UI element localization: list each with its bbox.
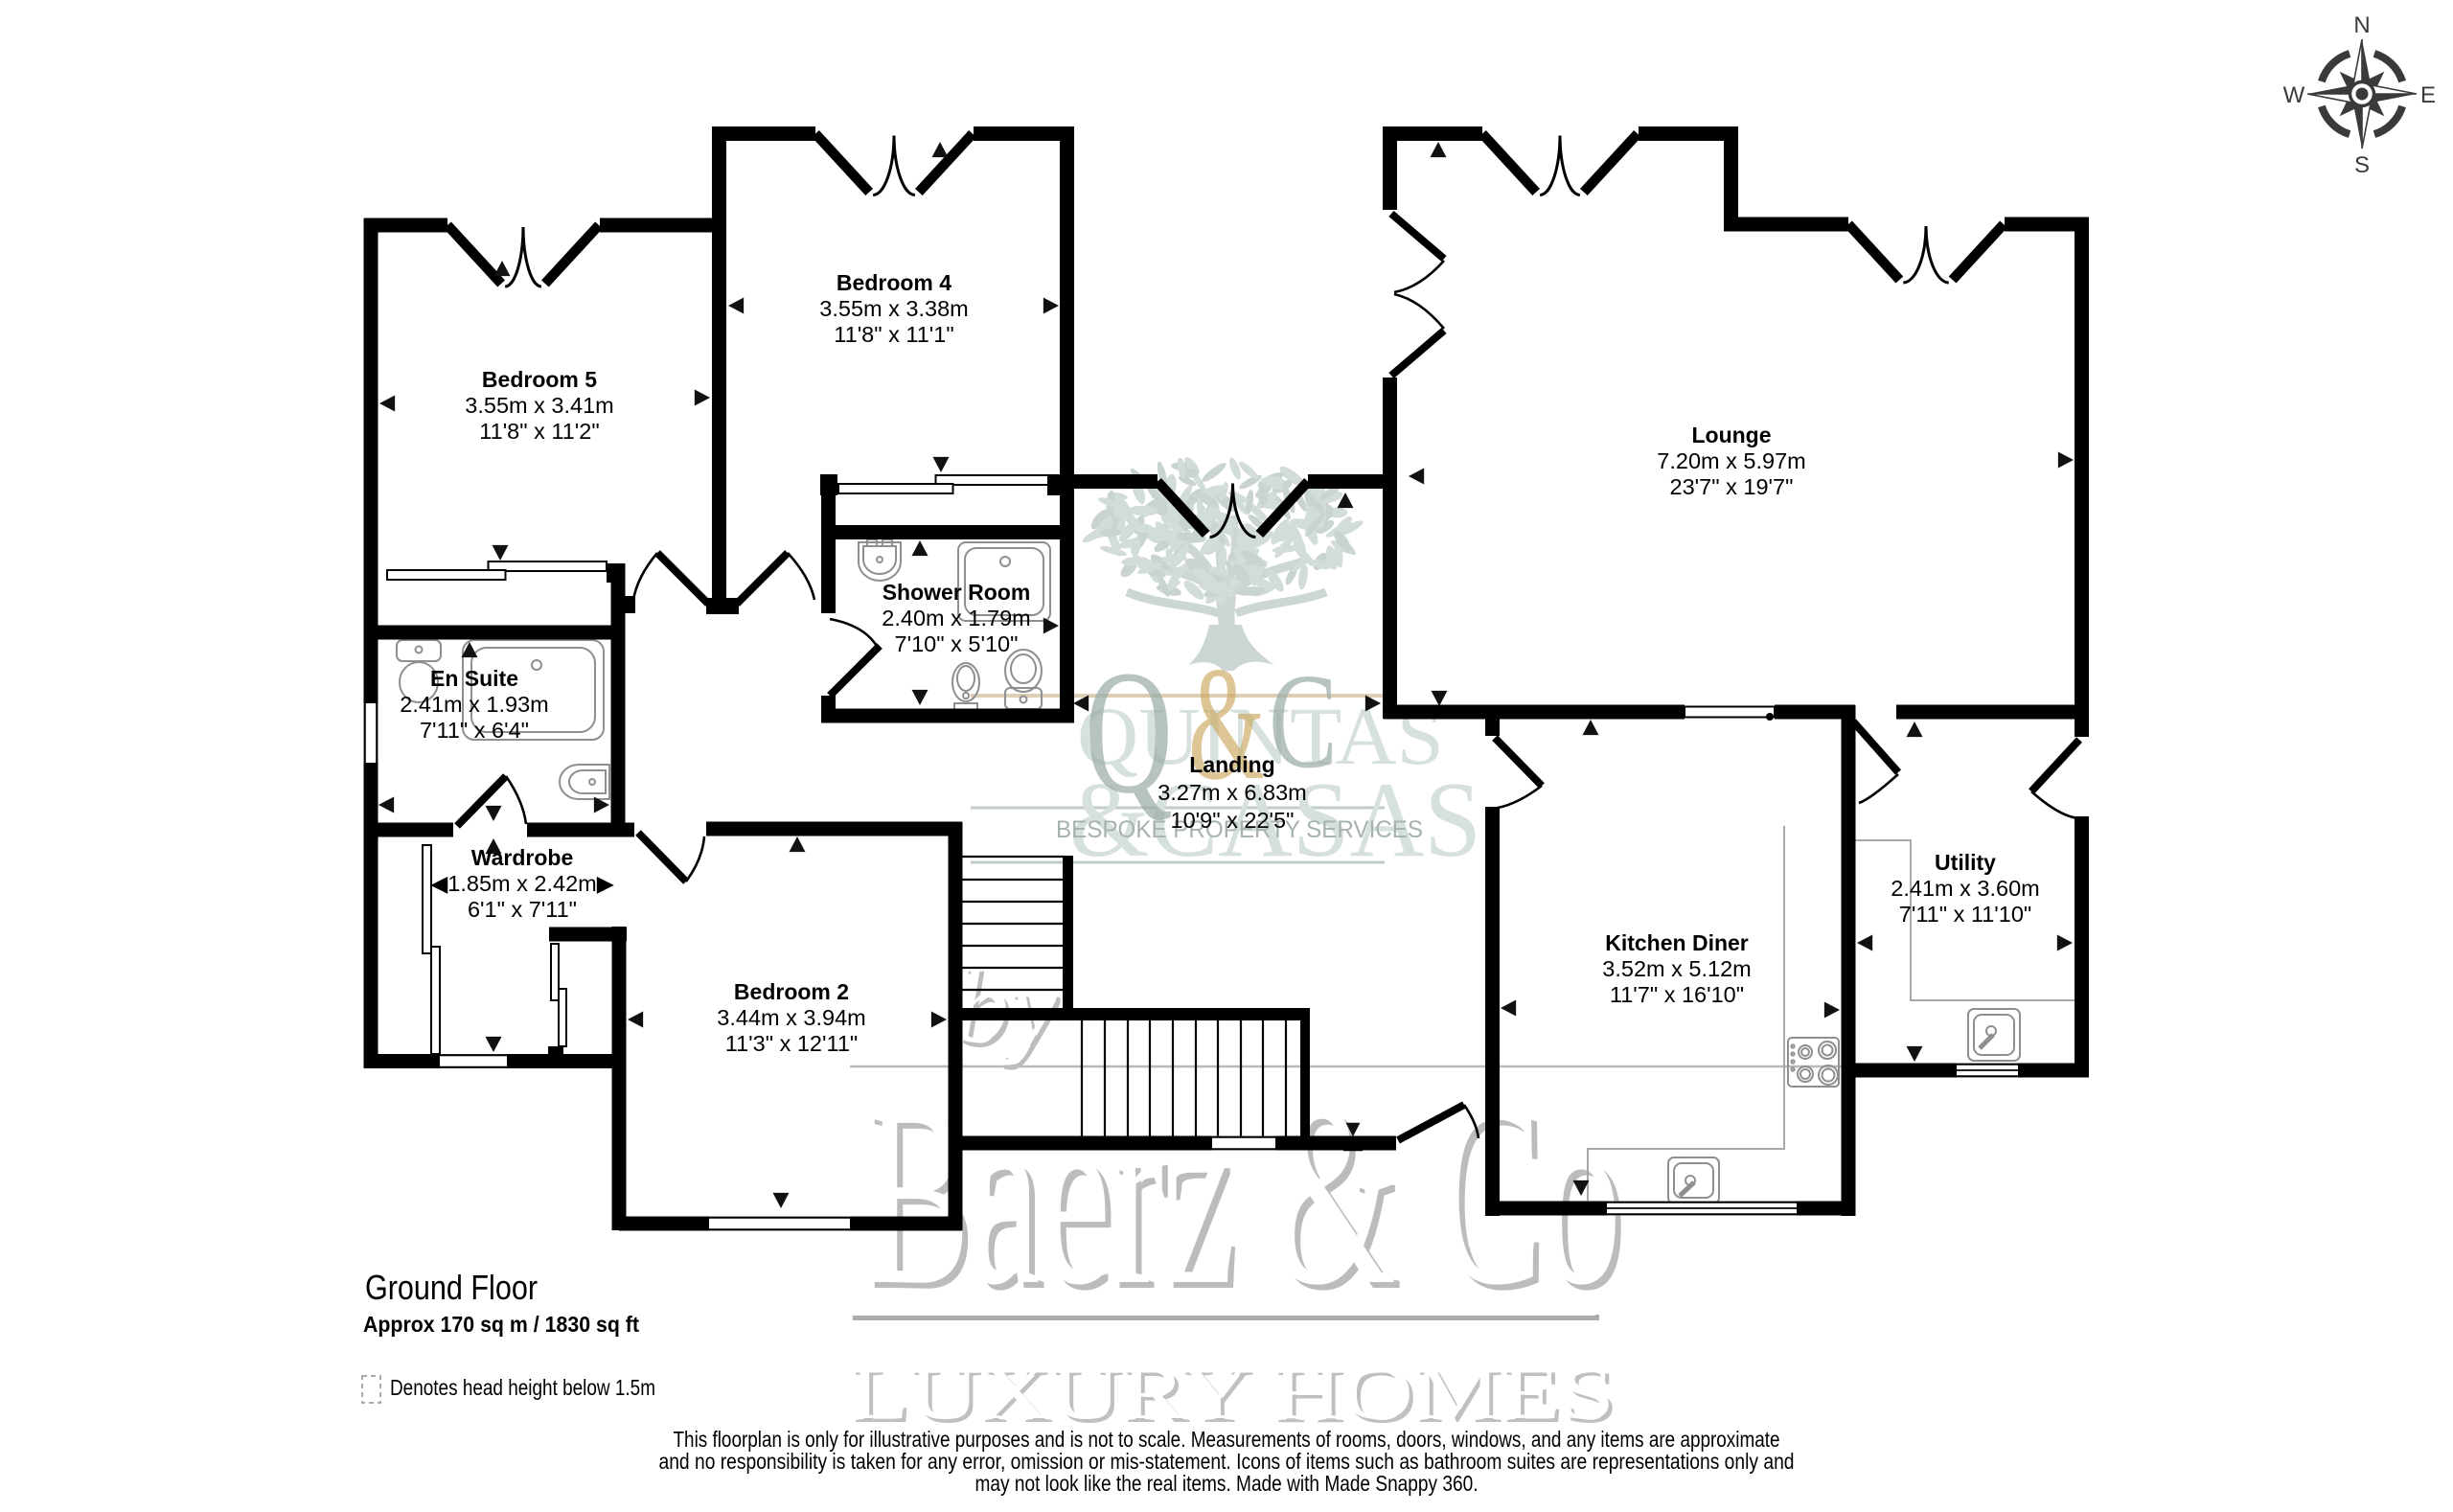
svg-text:2.41m x 1.93m: 2.41m x 1.93m: [400, 692, 548, 717]
svg-text:7.20m x 5.97m: 7.20m x 5.97m: [1657, 448, 1805, 473]
svg-text:LUXURY HOMES: LUXURY HOMES: [849, 1351, 1615, 1434]
svg-text:Shower Room: Shower Room: [883, 580, 1031, 605]
svg-text:Denotes head height below 1.5m: Denotes head height below 1.5m: [390, 1375, 655, 1400]
svg-text:10'9" x 22'5": 10'9" x 22'5": [1171, 808, 1295, 833]
svg-text:E: E: [2420, 82, 2436, 108]
svg-text:3.55m x 3.41m: 3.55m x 3.41m: [465, 393, 613, 418]
svg-text:En Suite: En Suite: [430, 666, 518, 691]
svg-text:11'8" x 11'2": 11'8" x 11'2": [479, 419, 599, 444]
svg-text:23'7" x 19'7": 23'7" x 19'7": [1670, 474, 1794, 499]
svg-text:7'10" x 5'10": 7'10" x 5'10": [895, 631, 1019, 656]
svg-text:6'1" x 7'11": 6'1" x 7'11": [468, 897, 577, 922]
svg-text:Utility: Utility: [1935, 850, 1996, 875]
svg-text:3.52m x 5.12m: 3.52m x 5.12m: [1602, 956, 1751, 981]
svg-text:3.27m x 6.83m: 3.27m x 6.83m: [1158, 780, 1306, 805]
svg-text:Bedroom 4: Bedroom 4: [837, 270, 951, 295]
svg-text:W: W: [2283, 82, 2305, 108]
svg-text:N: N: [2353, 12, 2370, 38]
svg-text:11'8" x 11'1": 11'8" x 11'1": [834, 322, 953, 347]
svg-text:3.55m x 3.38m: 3.55m x 3.38m: [819, 296, 968, 321]
svg-text:7'11" x 11'10": 7'11" x 11'10": [1899, 902, 2031, 927]
svg-text:C: C: [1269, 645, 1338, 796]
svg-text:Lounge: Lounge: [1691, 423, 1771, 447]
svg-text:Landing: Landing: [1189, 752, 1274, 777]
svg-text:S: S: [2354, 152, 2370, 178]
svg-text:Bedroom 5: Bedroom 5: [482, 367, 597, 392]
svg-text:Kitchen Diner: Kitchen Diner: [1605, 930, 1749, 955]
svg-text:7'11" x 6'4": 7'11" x 6'4": [420, 718, 529, 743]
svg-text:Approx 170 sq m / 1830 sq ft: Approx 170 sq m / 1830 sq ft: [363, 1312, 639, 1337]
svg-text:Ground Floor: Ground Floor: [365, 1268, 538, 1307]
svg-text:by: by: [955, 947, 1057, 1065]
svg-text:3.44m x 3.94m: 3.44m x 3.94m: [717, 1005, 865, 1030]
svg-text:11'3" x 12'11": 11'3" x 12'11": [725, 1031, 858, 1056]
svg-text:Bedroom 2: Bedroom 2: [734, 979, 849, 1004]
svg-text:2.40m x 1.79m: 2.40m x 1.79m: [882, 606, 1030, 630]
svg-text:Wardrobe: Wardrobe: [471, 845, 574, 870]
svg-text:◀1.85m x 2.42m▶: ◀1.85m x 2.42m▶: [430, 871, 615, 896]
svg-text:11'7" x 16'10": 11'7" x 16'10": [1610, 982, 1744, 1007]
svg-text:Baerz & Co: Baerz & Co: [864, 1050, 1621, 1339]
svg-text:may not look like the real ite: may not look like the real items. Made w…: [975, 1471, 1479, 1496]
svg-text:2.41m x 3.60m: 2.41m x 3.60m: [1891, 876, 2039, 901]
